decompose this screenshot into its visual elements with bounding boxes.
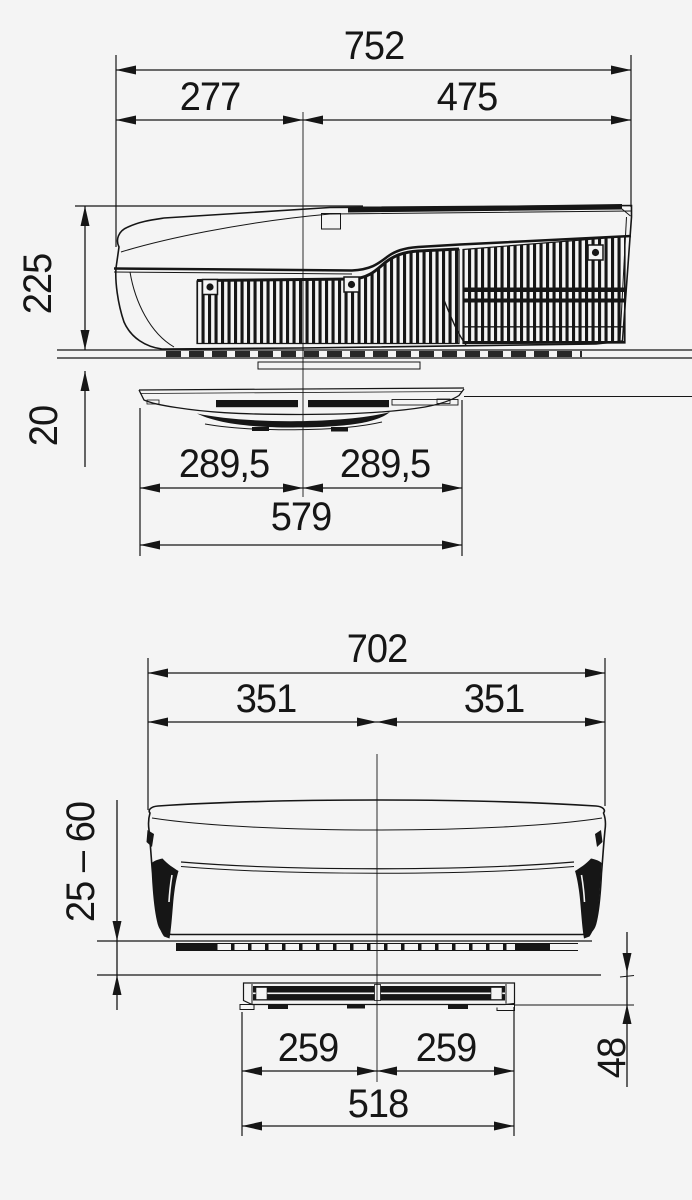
corner-sliver-left [147,830,155,847]
dim-20 [81,371,90,467]
extension-lines [75,55,634,1136]
dim-label-overall-width: 702 [347,629,408,669]
front-view [97,800,606,1011]
side-panel-left [152,859,179,939]
dim-label-roof-thickness: 25 – 60 [61,802,101,922]
dim-label-overall-length: 752 [344,26,405,66]
front-seam [181,862,574,869]
base-plate [258,362,420,369]
dim-label-distributor-right-half: 289,5 [340,444,430,484]
dimension-drawing [0,0,692,1200]
side-panel-right [575,859,602,939]
dim-label-cutout-right-half: 259 [416,1028,477,1068]
dim-225 [81,206,90,350]
dim-label-distributor-length: 579 [271,497,332,537]
mount-square-2 [344,277,359,292]
mount-square-3 [588,245,603,260]
side-view [57,204,692,432]
right-grille-rail-2 [463,299,625,303]
dim-579 [140,541,462,550]
dim-25-60 [113,800,122,1010]
corner-sliver-right [595,830,603,847]
side-grille-left [197,250,459,344]
dim-label-unit-height: 225 [18,254,58,315]
dim-label-cutout-left-half: 259 [278,1028,339,1068]
right-grille-rail-1 [463,288,625,293]
front-seam-lower [181,867,574,874]
dim-label-front-section: 277 [180,77,241,117]
front-inner-curve [130,272,174,347]
right-grille-rail-bottom [463,341,625,344]
dim-label-roof-to-distributor: 20 [24,406,64,446]
right-grille-rail-3 [463,326,625,328]
technical-drawing-page: 752 277 475 225 20 289,5 289,5 579 702 3… [0,0,692,1200]
dim-label-distributor-left-half: 289,5 [179,444,269,484]
dim-label-distributor-height: 48 [592,1038,632,1078]
dim-label-left-half: 351 [236,679,297,719]
dim-label-grille-section: 475 [437,77,498,117]
side-distributor [139,388,692,432]
mount-square-1 [203,280,218,295]
dim-label-cutout-width: 518 [348,1084,409,1124]
top-vent-box [322,214,341,230]
dimension-lines [75,55,634,1136]
body-seam-lower [114,272,352,274]
dim-label-right-half: 351 [464,679,525,719]
